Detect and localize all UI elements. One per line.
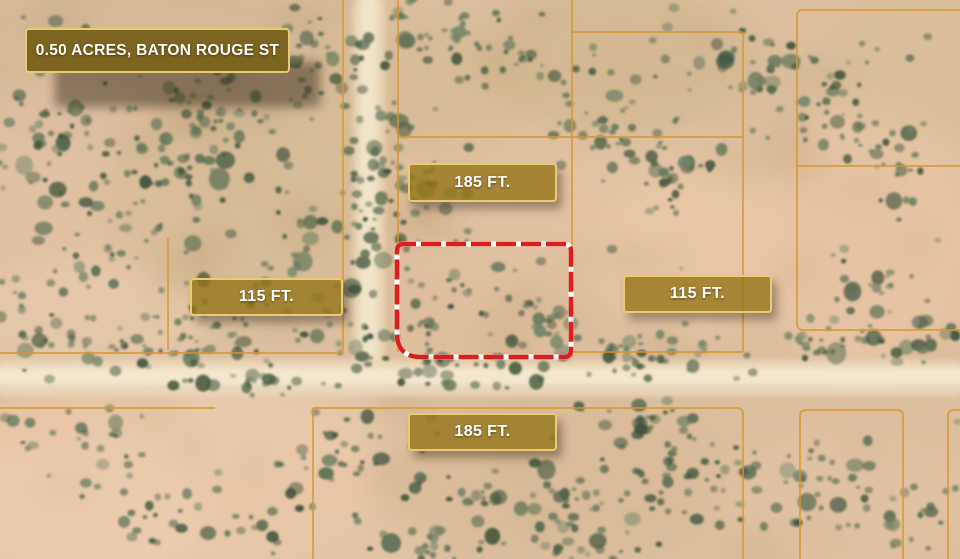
dimension-label-bottom: 185 FT.	[408, 413, 557, 451]
dimension-label-right-text: 115 FT.	[670, 285, 725, 303]
dimension-label-left-text: 115 FT.	[239, 288, 294, 306]
dimension-label-left: 115 FT.	[190, 278, 343, 316]
satellite-map: 0.50 ACRES, BATON ROUGE ST 185 FT. 115 F…	[0, 0, 960, 559]
parcel-title-badge: 0.50 ACRES, BATON ROUGE ST	[25, 28, 290, 73]
dimension-label-bottom-text: 185 FT.	[454, 423, 510, 441]
dimension-label-top: 185 FT.	[408, 163, 557, 202]
parcel-title-text: 0.50 ACRES, BATON ROUGE ST	[36, 42, 280, 60]
dimension-label-top-text: 185 FT.	[454, 174, 510, 192]
dimension-label-right: 115 FT.	[623, 275, 772, 313]
parcel-overlay-layer	[0, 0, 960, 559]
